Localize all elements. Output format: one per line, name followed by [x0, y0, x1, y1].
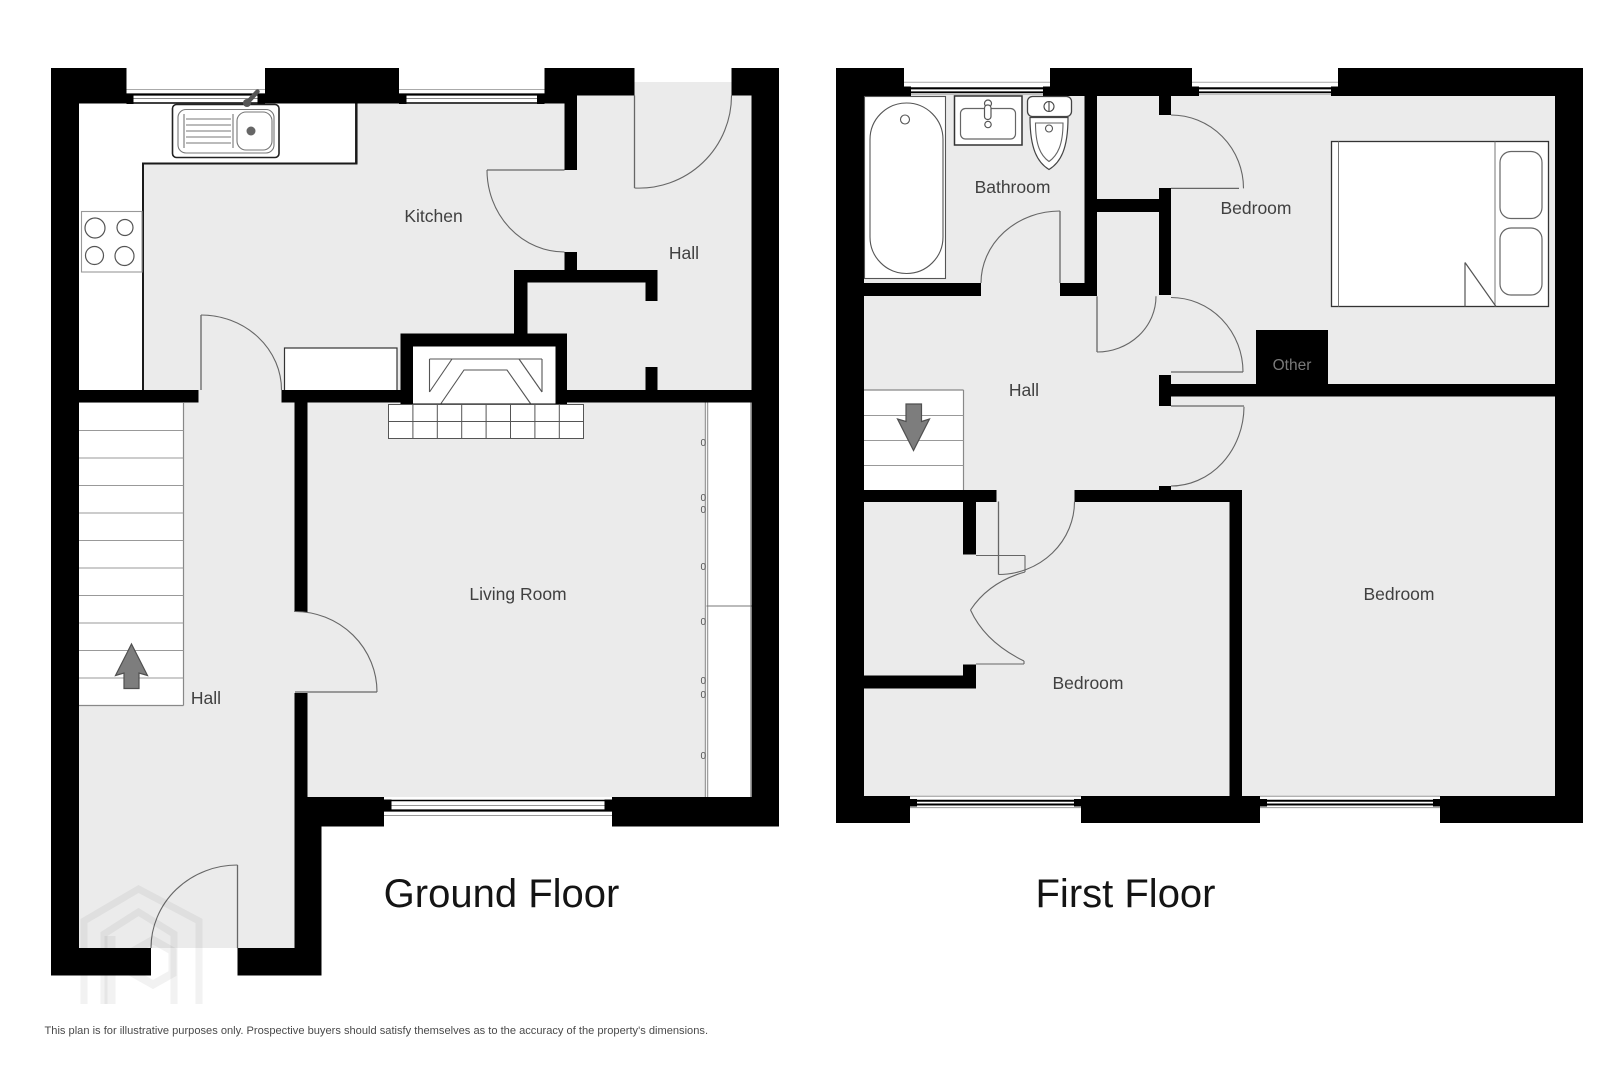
svg-text:Hall: Hall	[669, 243, 699, 263]
svg-text:Bathroom: Bathroom	[975, 177, 1051, 197]
svg-text:0: 0	[700, 493, 706, 504]
svg-text:0: 0	[700, 676, 706, 687]
svg-text:Other: Other	[1273, 357, 1312, 374]
svg-text:Bedroom: Bedroom	[1052, 673, 1123, 693]
svg-text:Hall: Hall	[1009, 380, 1039, 400]
svg-text:Kitchen: Kitchen	[404, 206, 462, 226]
svg-text:0: 0	[700, 505, 706, 516]
svg-text:Bedroom: Bedroom	[1363, 584, 1434, 604]
svg-text:0: 0	[700, 690, 706, 701]
svg-text:0: 0	[700, 562, 706, 573]
svg-text:This plan is for illustrative: This plan is for illustrative purposes o…	[45, 1025, 709, 1037]
svg-text:Bedroom: Bedroom	[1220, 198, 1291, 218]
svg-text:Living Room: Living Room	[469, 584, 566, 604]
svg-text:0: 0	[700, 438, 706, 449]
svg-text:Ground Floor: Ground Floor	[384, 872, 620, 916]
svg-text:First Floor: First Floor	[1036, 872, 1216, 916]
svg-text:0: 0	[700, 751, 706, 762]
svg-text:Hall: Hall	[191, 688, 221, 708]
svg-text:0: 0	[700, 617, 706, 628]
